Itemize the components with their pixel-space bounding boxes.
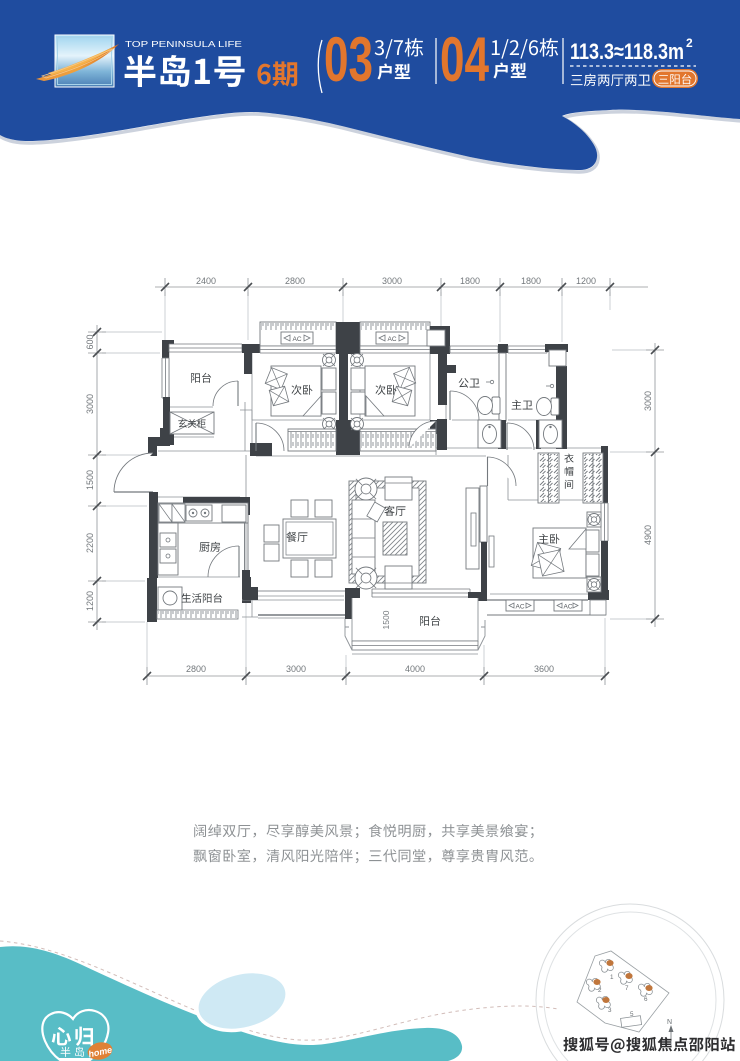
- svg-text:AC: AC: [515, 604, 524, 611]
- svg-text:2800: 2800: [186, 664, 206, 674]
- svg-text:5: 5: [630, 1011, 634, 1018]
- svg-text:1500: 1500: [381, 610, 391, 629]
- svg-text:2: 2: [598, 987, 602, 994]
- svg-text:3: 3: [608, 1007, 612, 1014]
- svg-text:600: 600: [85, 334, 95, 349]
- svg-text:3600: 3600: [534, 664, 554, 674]
- svg-text:1200: 1200: [85, 591, 95, 611]
- svg-text:7: 7: [625, 985, 629, 992]
- svg-text:1500: 1500: [85, 470, 95, 490]
- svg-text:4900: 4900: [643, 525, 653, 545]
- svg-text:03: 03: [324, 24, 373, 95]
- svg-text:3000: 3000: [85, 394, 95, 414]
- svg-text:3000: 3000: [382, 276, 402, 286]
- svg-text:3000: 3000: [286, 664, 306, 674]
- svg-text:TOP PENINSULA LIFE: TOP PENINSULA LIFE: [125, 39, 242, 49]
- svg-text:1: 1: [610, 974, 614, 981]
- svg-text:1200: 1200: [576, 276, 596, 286]
- svg-text:4000: 4000: [405, 664, 425, 674]
- svg-text:1800: 1800: [521, 276, 541, 286]
- svg-text:2400: 2400: [196, 276, 216, 286]
- svg-text:AC: AC: [292, 336, 301, 343]
- svg-text:113.3≈118.3m: 113.3≈118.3m: [570, 39, 684, 64]
- svg-text:3000: 3000: [643, 391, 653, 411]
- svg-text:1800: 1800: [460, 276, 480, 286]
- svg-text:2: 2: [686, 36, 693, 50]
- svg-text:6: 6: [644, 996, 648, 1003]
- svg-text:2800: 2800: [285, 276, 305, 286]
- svg-text:04: 04: [440, 24, 489, 95]
- svg-text:AC: AC: [563, 604, 572, 611]
- svg-text:AC: AC: [387, 336, 396, 343]
- svg-text:2200: 2200: [85, 533, 95, 553]
- svg-text:N: N: [667, 1019, 672, 1026]
